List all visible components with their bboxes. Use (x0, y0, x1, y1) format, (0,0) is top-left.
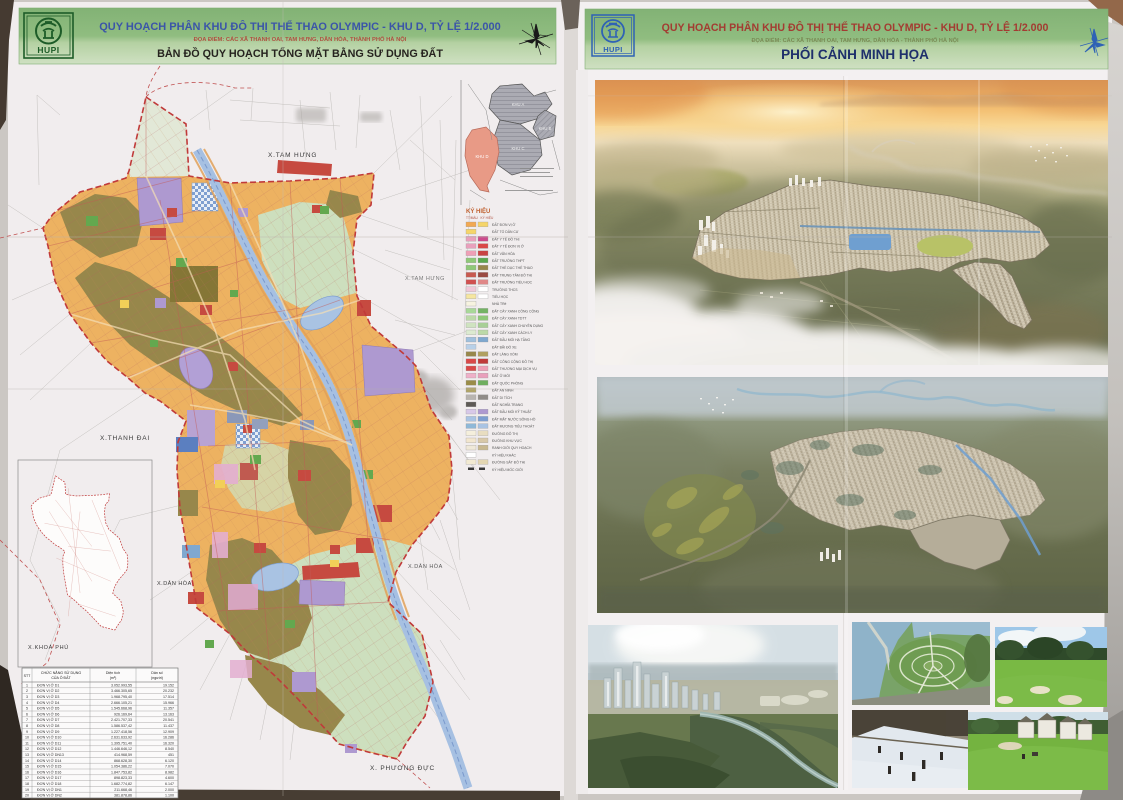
svg-text:ĐƠN VỊ Ở D17: ĐƠN VỊ Ở D17 (37, 775, 61, 780)
svg-text:ĐƠN VỊ Ở D15: ĐƠN VỊ Ở D15 (37, 764, 61, 769)
svg-text:451: 451 (168, 753, 174, 757)
svg-text:5: 5 (26, 707, 28, 711)
svg-text:898.823,33: 898.823,33 (114, 776, 132, 780)
svg-text:381.878,86: 381.878,86 (114, 794, 132, 798)
svg-text:ĐƠN VỊ Ở D8: ĐƠN VỊ Ở D8 (37, 723, 59, 728)
svg-text:ĐƠN VỊ Ở DN13: ĐƠN VỊ Ở DN13 (37, 752, 64, 757)
svg-text:2: 2 (26, 689, 28, 693)
svg-text:ĐƠN VỊ Ở D16: ĐƠN VỊ Ở D16 (37, 769, 61, 774)
svg-text:BẢN ĐỒ QUY HOẠCH TỔNG MẶT BẰNG: BẢN ĐỒ QUY HOẠCH TỔNG MẶT BẰNG SỬ DỤNG Đ… (157, 47, 443, 60)
svg-text:ĐƠN VỊ Ở D12: ĐƠN VỊ Ở D12 (37, 746, 61, 751)
svg-text:19.152: 19.152 (163, 683, 174, 687)
svg-text:1.100: 1.100 (165, 794, 174, 798)
svg-text:Diện tích: Diện tích (106, 671, 120, 675)
svg-text:7.070: 7.070 (165, 765, 174, 769)
svg-text:ĐƠN VỊ Ở D3: ĐƠN VỊ Ở D3 (37, 694, 59, 699)
svg-text:20: 20 (25, 794, 29, 798)
svg-text:ĐẤT TỔ DÂN CƯ: ĐẤT TỔ DÂN CƯ (492, 229, 519, 234)
svg-text:ĐẤT CÂY XANH CÁCH LY: ĐẤT CÂY XANH CÁCH LY (492, 331, 533, 335)
svg-text:KÝ HIỆU KHÁC: KÝ HIỆU KHÁC (492, 452, 516, 457)
svg-text:2.421.707,33: 2.421.707,33 (111, 718, 132, 722)
svg-text:ĐẤT Ở MỚI: ĐẤT Ở MỚI (492, 373, 510, 378)
svg-text:926.169,64: 926.169,64 (114, 712, 132, 716)
svg-text:4: 4 (26, 701, 28, 705)
svg-text:ĐẤT ĐẦU MỐI HẠ TẦNG: ĐẤT ĐẦU MỐI HẠ TẦNG (492, 337, 530, 342)
svg-text:ĐƯỜNG KHU VỰC: ĐƯỜNG KHU VỰC (492, 438, 523, 443)
svg-text:1.054.386,22: 1.054.386,22 (111, 765, 132, 769)
svg-text:13: 13 (25, 753, 29, 757)
svg-text:1.586.537,42: 1.586.537,42 (111, 724, 132, 728)
svg-text:1.395.751,40: 1.395.751,40 (111, 741, 132, 745)
svg-text:9: 9 (26, 730, 28, 734)
svg-text:17.514: 17.514 (163, 695, 174, 699)
svg-text:ĐẤT BÃI ĐỖ XE: ĐẤT BÃI ĐỖ XE (492, 344, 517, 349)
svg-text:ĐƠN VỊ Ở D7: ĐƠN VỊ Ở D7 (37, 717, 59, 722)
svg-text:ĐƠN VỊ Ở D14: ĐƠN VỊ Ở D14 (37, 758, 61, 763)
svg-text:ĐƠN VỊ Ở D5: ĐƠN VỊ Ở D5 (37, 706, 59, 711)
svg-text:8: 8 (26, 724, 28, 728)
svg-text:ĐẤT MẶT NƯỚC SÔNG HỒ: ĐẤT MẶT NƯỚC SÔNG HỒ (492, 416, 536, 421)
svg-text:ĐỌA ĐIỂM: CÁC XÃ THANH OAI, TA: ĐỌA ĐIỂM: CÁC XÃ THANH OAI, TAM HƯNG, DÂ… (194, 35, 407, 43)
svg-text:ĐẤT CÂY XANH CÔNG CỘNG: ĐẤT CÂY XANH CÔNG CỘNG (492, 308, 540, 313)
svg-text:ĐƯỜNG ĐÔ THỊ: ĐƯỜNG ĐÔ THỊ (492, 431, 518, 436)
svg-text:1.545.668,96: 1.545.668,96 (111, 707, 132, 711)
svg-text:ĐƠN VỊ Ở D11: ĐƠN VỊ Ở D11 (37, 740, 61, 745)
svg-text:1: 1 (26, 683, 28, 687)
svg-text:HUPI: HUPI (603, 45, 623, 54)
svg-text:16.320: 16.320 (163, 741, 174, 745)
svg-text:QUY HOẠCH PHÂN KHU ĐÔ THỊ THỂ: QUY HOẠCH PHÂN KHU ĐÔ THỊ THỂ THAO OLYMP… (99, 20, 501, 33)
svg-text:ĐẤT TRUNG TÂM ĐÔ THỊ: ĐẤT TRUNG TÂM ĐÔ THỊ (492, 272, 532, 277)
svg-text:8.982: 8.982 (165, 770, 174, 774)
svg-text:2.000: 2.000 (165, 788, 174, 792)
svg-text:X.TAM HƯNG: X.TAM HƯNG (268, 152, 317, 159)
svg-text:STT: STT (24, 674, 32, 678)
svg-text:ĐƠN VỊ Ở DN1: ĐƠN VỊ Ở DN1 (37, 787, 62, 792)
svg-text:ĐẤT MƯƠNG TIÊU THOÁT: ĐẤT MƯƠNG TIÊU THOÁT (492, 424, 534, 429)
svg-text:11.437: 11.437 (163, 724, 174, 728)
svg-text:ĐƠN VỊ Ở D18: ĐƠN VỊ Ở D18 (37, 781, 61, 786)
svg-text:6.120: 6.120 (165, 759, 174, 763)
svg-text:ĐẤT CÂY XANH TDTT: ĐẤT CÂY XANH TDTT (492, 317, 526, 321)
svg-text:8.540: 8.540 (165, 747, 174, 751)
svg-text:ĐẤT TRƯỜNG TIỂU HỌC: ĐẤT TRƯỜNG TIỂU HỌC (492, 280, 533, 285)
svg-text:2.666.105,21: 2.666.105,21 (111, 701, 132, 705)
svg-text:X.THANH ĐAI: X.THANH ĐAI (100, 435, 150, 442)
svg-text:3: 3 (26, 695, 28, 699)
svg-text:14: 14 (25, 759, 29, 763)
svg-text:TT/MÀU KÝ HIỆU: TT/MÀU KÝ HIỆU (466, 215, 494, 220)
svg-text:19: 19 (25, 788, 29, 792)
svg-text:11.357: 11.357 (163, 707, 174, 711)
svg-text:KHU B: KHU B (539, 126, 552, 131)
svg-text:X. PHƯƠNG ĐỰC: X. PHƯƠNG ĐỰC (370, 765, 435, 772)
svg-text:HUPI: HUPI (37, 45, 59, 55)
svg-text:1.446.646,12: 1.446.646,12 (111, 747, 132, 751)
svg-text:ĐẤT VĂN HÓA: ĐẤT VĂN HÓA (492, 251, 516, 256)
svg-text:ĐƯỜNG SẮT ĐÔ THỊ: ĐƯỜNG SẮT ĐÔ THỊ (492, 460, 525, 465)
svg-text:15: 15 (25, 765, 29, 769)
svg-text:3.052.993,55: 3.052.993,55 (111, 683, 132, 687)
svg-text:ĐẤT ĐẦU MỐI KỸ THUẬT: ĐẤT ĐẦU MỐI KỸ THUẬT (492, 409, 532, 414)
svg-text:CỦA Ô ĐẤT: CỦA Ô ĐẤT (51, 675, 71, 680)
svg-text:3.466.305,65: 3.466.305,65 (111, 689, 132, 693)
svg-text:ĐƠN VỊ Ở D4: ĐƠN VỊ Ở D4 (37, 700, 59, 705)
svg-text:Dân số: Dân số (151, 671, 162, 675)
svg-text:16.286: 16.286 (163, 736, 174, 740)
svg-text:X.KHOÁ PHÚ: X.KHOÁ PHÚ (28, 644, 69, 651)
svg-text:1.682.774,82: 1.682.774,82 (111, 782, 132, 786)
svg-text:15.966: 15.966 (163, 701, 174, 705)
svg-text:RANH GIỚI QUY HOẠCH: RANH GIỚI QUY HOẠCH (492, 445, 532, 450)
svg-text:16: 16 (25, 770, 29, 774)
svg-text:X.DÂN HÒA: X.DÂN HÒA (408, 563, 443, 570)
svg-text:7: 7 (26, 718, 28, 722)
svg-text:ĐẤT CÔNG CỘNG ĐÔ THỊ: ĐẤT CÔNG CỘNG ĐÔ THỊ (492, 359, 533, 364)
svg-text:(người): (người) (151, 676, 163, 680)
svg-text:ĐẤT CÂY XANH CHUYÊN DỤNG: ĐẤT CÂY XANH CHUYÊN DỤNG (492, 323, 543, 328)
svg-text:KÝ HIỆU: KÝ HIỆU (466, 207, 490, 215)
svg-text:6: 6 (26, 712, 28, 716)
svg-text:ĐẤT ĐƠN VỊ Ở: ĐẤT ĐƠN VỊ Ở (492, 222, 516, 227)
svg-text:13.163: 13.163 (163, 712, 174, 716)
svg-text:NHÀ TRẻ: NHÀ TRẻ (492, 302, 507, 306)
svg-text:20.541: 20.541 (163, 718, 174, 722)
svg-text:ĐẤT LÀNG XÓM: ĐẤT LÀNG XÓM (492, 352, 518, 357)
svg-text:CHỨC NĂNG SỬ DỤNG: CHỨC NĂNG SỬ DỤNG (41, 670, 81, 675)
svg-text:211.668,46: 211.668,46 (114, 788, 132, 792)
svg-text:PHỐI CẢNH MINH HỌA: PHỐI CẢNH MINH HỌA (781, 47, 929, 62)
svg-text:ĐƠN VỊ Ở D2: ĐƠN VỊ Ở D2 (37, 688, 59, 693)
svg-text:1.847.753,82: 1.847.753,82 (111, 770, 132, 774)
svg-text:ĐẤT THỂ DỤC THỂ THAO: ĐẤT THỂ DỤC THỂ THAO (492, 265, 533, 270)
svg-text:ĐẤT TRƯỜNG THPT: ĐẤT TRƯỜNG THPT (492, 258, 525, 263)
svg-text:ĐẤT THƯƠNG MẠI DỊCH VỤ: ĐẤT THƯƠNG MẠI DỊCH VỤ (492, 367, 537, 371)
svg-text:1.227.418,56: 1.227.418,56 (111, 730, 132, 734)
svg-text:QUY HOẠCH PHÂN KHU ĐÔ THỊ THỂ: QUY HOẠCH PHÂN KHU ĐÔ THỊ THỂ THAO OLYMP… (662, 21, 1049, 34)
svg-text:11: 11 (25, 741, 29, 745)
svg-text:KHU A: KHU A (512, 102, 525, 107)
svg-text:6.147: 6.147 (165, 782, 174, 786)
svg-text:12.909: 12.909 (163, 730, 174, 734)
svg-text:ĐẤT NGHĨA TRANG: ĐẤT NGHĨA TRANG (492, 402, 523, 407)
svg-text:(m²): (m²) (110, 676, 117, 680)
svg-text:ĐẤT DI TÍCH: ĐẤT DI TÍCH (492, 396, 512, 400)
svg-text:2.631.633,92: 2.631.633,92 (111, 736, 132, 740)
svg-text:X.TAM HƯNG: X.TAM HƯNG (405, 276, 445, 282)
svg-text:ĐẤT Y TẾ ĐƠN VỊ Ở: ĐẤT Y TẾ ĐƠN VỊ Ở (492, 244, 524, 249)
svg-text:KÝ HIỆU MỐC GIỚI: KÝ HIỆU MỐC GIỚI (492, 467, 523, 472)
svg-text:4.600: 4.600 (165, 776, 174, 780)
svg-text:1.968.795,40: 1.968.795,40 (111, 695, 132, 699)
svg-text:ĐỌA ĐIỂM: CÁC XÃ THANH OAI, TA: ĐỌA ĐIỂM: CÁC XÃ THANH OAI, TAM HƯNG, DÂ… (751, 36, 958, 44)
svg-text:18: 18 (25, 782, 29, 786)
svg-text:KHU C: KHU C (511, 146, 524, 151)
svg-text:ĐẤT QUỐC PHÒNG: ĐẤT QUỐC PHÒNG (492, 380, 524, 385)
svg-text:X.DÂN HÒA: X.DÂN HÒA (157, 580, 192, 587)
svg-text:12: 12 (25, 747, 29, 751)
svg-text:20.232: 20.232 (163, 689, 174, 693)
svg-text:ĐƠN VỊ Ở D9: ĐƠN VỊ Ở D9 (37, 729, 59, 734)
svg-text:ĐƠN VỊ Ở D10: ĐƠN VỊ Ở D10 (37, 735, 61, 740)
svg-text:KHU D: KHU D (475, 154, 488, 159)
svg-text:ĐƠN VỊ Ở D1: ĐƠN VỊ Ở D1 (37, 682, 59, 687)
svg-text:414.968,59: 414.968,59 (114, 753, 132, 757)
svg-text:ĐƠN VỊ Ở DN2: ĐƠN VỊ Ở DN2 (37, 793, 62, 798)
svg-text:10: 10 (25, 736, 29, 740)
svg-text:TIỂU HỌC: TIỂU HỌC (492, 294, 509, 299)
svg-text:868.628,30: 868.628,30 (114, 759, 132, 763)
svg-text:ĐƠN VỊ Ở D6: ĐƠN VỊ Ở D6 (37, 711, 59, 716)
svg-text:17: 17 (25, 776, 29, 780)
svg-text:TRƯỜNG THCS: TRƯỜNG THCS (492, 287, 518, 292)
